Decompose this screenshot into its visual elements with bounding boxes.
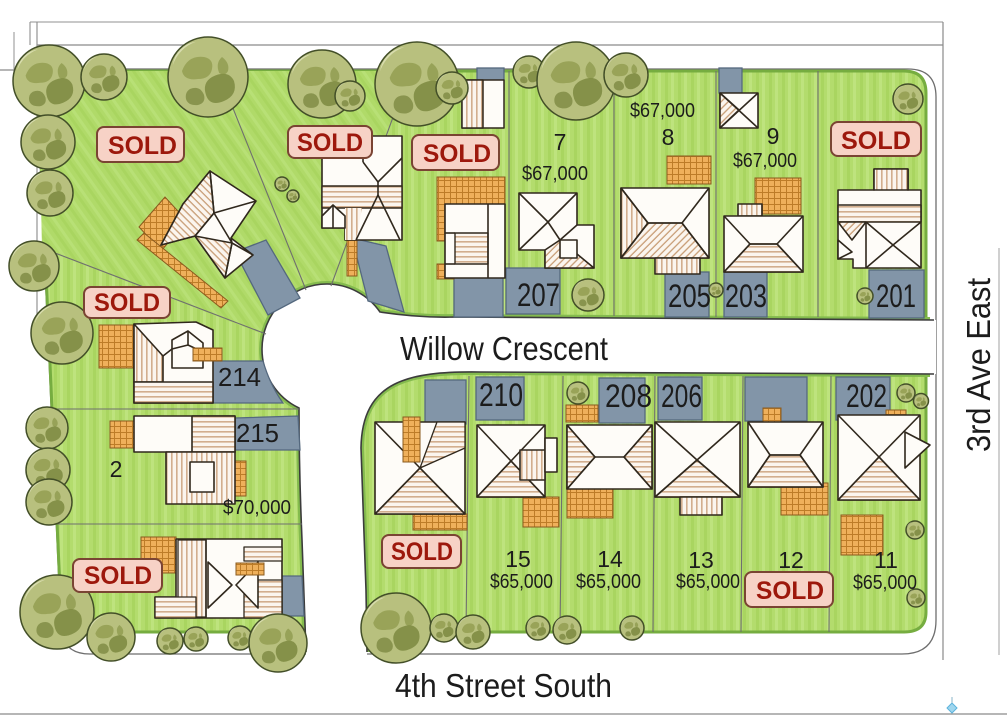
svg-text:SOLD: SOLD: [841, 127, 911, 155]
svg-text:215: 215: [236, 418, 279, 448]
svg-text:206: 206: [661, 378, 702, 414]
svg-text:214: 214: [218, 362, 261, 392]
svg-text:SOLD: SOLD: [297, 129, 363, 157]
svg-text:SOLD: SOLD: [391, 538, 453, 566]
svg-text:$70,000: $70,000: [223, 497, 291, 519]
svg-text:$67,000: $67,000: [522, 163, 588, 185]
svg-text:9: 9: [767, 123, 780, 149]
svg-text:$67,000: $67,000: [733, 150, 797, 172]
svg-text:$67,000: $67,000: [630, 100, 695, 122]
svg-text:203: 203: [725, 278, 767, 314]
svg-text:11: 11: [874, 547, 898, 573]
svg-text:$65,000: $65,000: [490, 571, 553, 593]
svg-text:13: 13: [688, 547, 714, 573]
svg-text:SOLD: SOLD: [84, 562, 152, 590]
svg-text:7: 7: [554, 129, 567, 155]
svg-text:$65,000: $65,000: [676, 571, 740, 593]
svg-text:$65,000: $65,000: [576, 571, 641, 593]
svg-text:205: 205: [668, 278, 711, 314]
svg-text:15: 15: [505, 546, 531, 572]
svg-text:8: 8: [662, 124, 675, 150]
svg-text:201: 201: [876, 278, 916, 314]
svg-text:207: 207: [517, 277, 560, 313]
svg-text:202: 202: [846, 378, 887, 414]
svg-text:3rd Ave East: 3rd Ave East: [960, 278, 997, 452]
svg-text:208: 208: [605, 378, 652, 414]
svg-text:210: 210: [479, 377, 523, 413]
svg-text:14: 14: [597, 546, 623, 572]
svg-text:12: 12: [778, 547, 804, 573]
svg-text:SOLD: SOLD: [94, 289, 160, 317]
svg-text:Willow Crescent: Willow Crescent: [400, 330, 608, 367]
svg-text:2: 2: [110, 456, 123, 482]
svg-text:SOLD: SOLD: [756, 577, 824, 605]
svg-text:$65,000: $65,000: [853, 572, 917, 594]
svg-text:SOLD: SOLD: [108, 132, 177, 160]
svg-text:SOLD: SOLD: [423, 140, 491, 168]
svg-text:4th Street South: 4th Street South: [395, 667, 612, 704]
